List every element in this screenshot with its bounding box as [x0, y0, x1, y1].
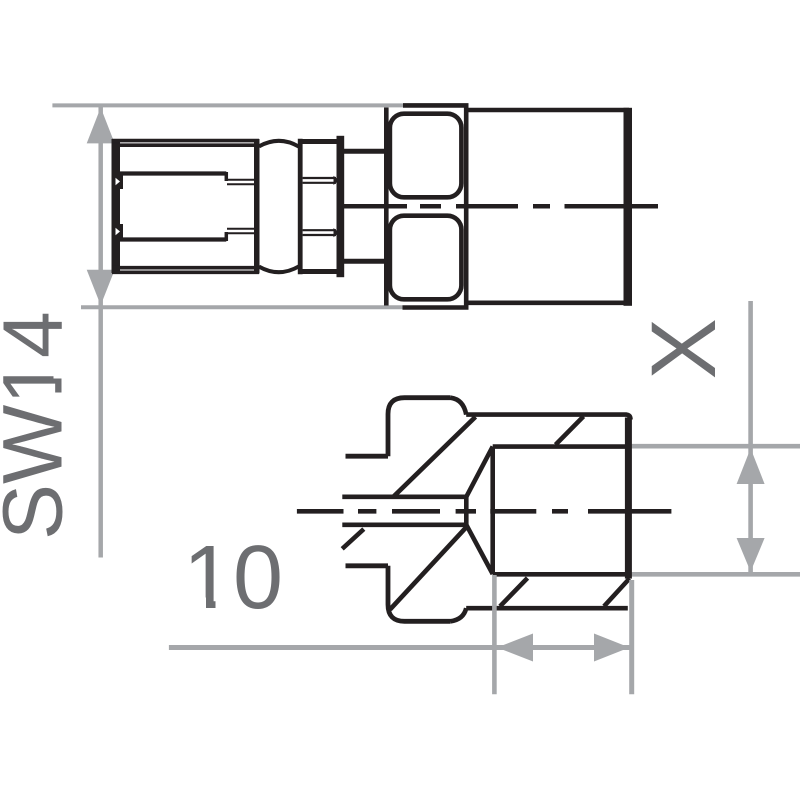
svg-text:SW14: SW14 [0, 311, 80, 540]
svg-text:10: 10 [183, 528, 283, 628]
svg-text:X: X [633, 318, 735, 379]
